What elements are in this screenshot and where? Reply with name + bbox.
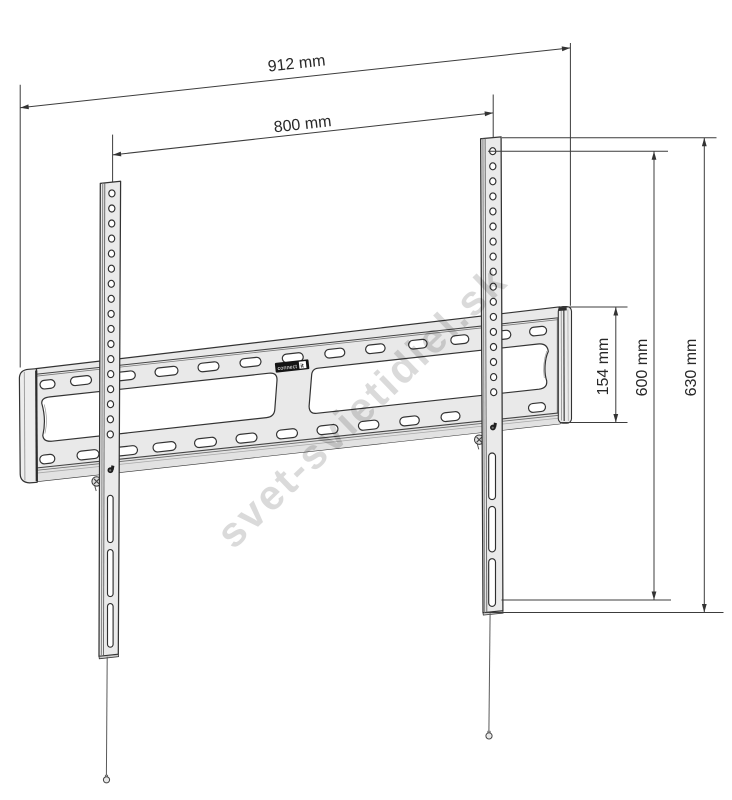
svg-text:154 mm: 154 mm — [595, 338, 612, 396]
svg-text:600 mm: 600 mm — [634, 339, 651, 397]
svg-text:630 mm: 630 mm — [683, 339, 700, 397]
